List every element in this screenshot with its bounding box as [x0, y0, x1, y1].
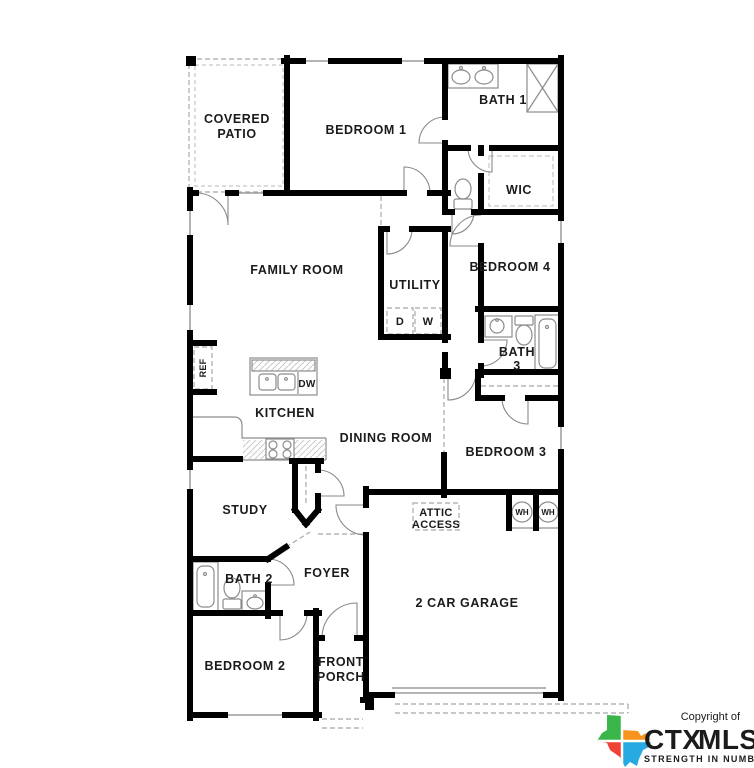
cased-opening-study: [286, 532, 310, 547]
ctxmls-logo: Copyright of CTX MLS STRENGTH IN NUMBERS: [588, 703, 754, 768]
label-bedroom-1: BEDROOM 1: [325, 123, 406, 137]
label-front-porch-2: PORCH: [317, 670, 365, 684]
label-utility: UTILITY: [389, 278, 440, 292]
wic-shelving: [489, 156, 553, 206]
label-family-room: FAMILY ROOM: [250, 263, 343, 277]
label-water-heater-2: WH: [541, 508, 555, 517]
bedroom4-door: [450, 215, 481, 246]
bath1-toilet: [454, 179, 472, 209]
toilet-room-door: [452, 212, 474, 234]
patio-post: [186, 56, 196, 66]
bedroom2-door: [280, 613, 307, 640]
garage-entry-door: [336, 505, 366, 535]
bedroom3-door: [448, 372, 476, 400]
label-covered-patio-2: PATIO: [217, 127, 256, 141]
label-covered-patio: COVERED: [204, 112, 270, 126]
texas-quadrant-tl: [594, 715, 622, 741]
bedroom3-closet-door: [502, 398, 528, 424]
texas-quadrant-bl: [594, 741, 622, 768]
walkway-outline: [322, 719, 363, 728]
garage-step: [360, 697, 374, 710]
label-dryer: D: [396, 316, 404, 328]
label-front-porch: FRONT: [318, 655, 364, 669]
label-bath-1: BATH 1: [479, 93, 527, 107]
patio-door: [196, 193, 228, 225]
label-wic: WIC: [506, 183, 532, 197]
floorplan-page: COVERED PATIO BEDROOM 1 BATH 1 WIC FAMIL…: [0, 0, 754, 768]
label-kitchen: KITCHEN: [255, 406, 315, 420]
bath1-shower: [527, 64, 558, 112]
bath1-door: [419, 117, 445, 143]
kitchen-stove: [266, 439, 294, 459]
floor-plan-svg: COVERED PATIO BEDROOM 1 BATH 1 WIC FAMIL…: [0, 0, 754, 768]
bath2-tub: [193, 562, 218, 611]
front-door: [322, 603, 357, 638]
bath3-toilet: [515, 316, 533, 345]
label-water-heater-1: WH: [515, 508, 529, 517]
label-attic-access-2: ACCESS: [412, 519, 460, 531]
label-dining-room: DINING ROOM: [340, 431, 433, 445]
bath1-vanity: [448, 64, 498, 88]
bath2-vanity: [242, 591, 268, 612]
coat-closet-door: [318, 470, 344, 496]
label-bedroom-2: BEDROOM 2: [204, 659, 285, 673]
label-bath-2: BATH 2: [225, 572, 273, 586]
logo-tagline: STRENGTH IN NUMBERS: [644, 754, 754, 764]
label-foyer: FOYER: [304, 566, 350, 580]
label-bedroom-3: BEDROOM 3: [465, 445, 546, 459]
walls: [190, 58, 561, 718]
label-study: STUDY: [222, 503, 267, 517]
windows: [190, 61, 561, 715]
logo-mls: MLS: [698, 724, 754, 755]
bedroom1-door: [404, 167, 430, 193]
label-bath-3: BATH: [499, 345, 535, 359]
label-garage: 2 CAR GARAGE: [415, 596, 518, 610]
label-refrigerator: REF: [198, 358, 208, 377]
corner-post: [440, 368, 451, 379]
utility-door: [387, 229, 412, 254]
label-bedroom-4: BEDROOM 4: [469, 260, 550, 274]
bath3-vanity: [485, 316, 512, 337]
bath3-tub: [535, 315, 560, 372]
label-dishwasher: DW: [298, 379, 316, 390]
kitchen-counter: [193, 417, 326, 460]
label-attic-access: ATTIC: [419, 507, 453, 519]
logo-ctx: CTX: [644, 724, 702, 755]
garage-door: [392, 688, 546, 693]
logo-copyright: Copyright of: [681, 711, 741, 723]
label-washer: W: [423, 316, 434, 328]
label-bath-3-num: 3: [513, 359, 521, 373]
